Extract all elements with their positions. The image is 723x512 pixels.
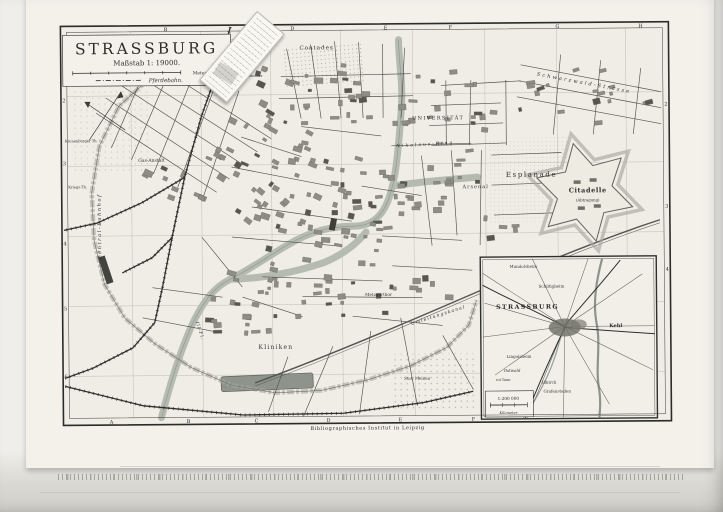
label-kriegsthor: Kriegs-Th. (68, 185, 87, 189)
inset-scale-unit: Kilometer (498, 411, 517, 415)
grid-top-h: H (638, 23, 643, 29)
grid-top-f: F (449, 25, 453, 31)
pferdebahn-label: Pferdebahn. (148, 78, 183, 84)
label-zentral-bahnhof: Zentral-Bahnhof (97, 193, 104, 260)
label-gas-anstalt: Gas-Anstalt (138, 158, 165, 164)
map-wrap: Contades Schwarzwald-Strasse UNIVERSITÄT… (30, 0, 714, 465)
inset-town-ostwald: Ostwald (504, 368, 521, 373)
publisher-credit: Bibliographisches Institut in Leipzig (310, 425, 425, 432)
map-title: STRASSBURG (75, 39, 218, 58)
grid-right-4: 4 (666, 267, 669, 273)
grid-left-5: 5 (64, 306, 67, 312)
inset-town-kehl: Kehl (609, 323, 622, 329)
inset-town-schiltigheim: Schiltigheim (539, 283, 565, 288)
label-stat-meinau: Stat. Meinau (404, 376, 431, 381)
inset-map: Mundolsheim Schiltigheim STRASSBURG Kehl… (480, 256, 657, 419)
inset-town-mundolsheim: Mundolsheim (509, 264, 537, 269)
label-esplanade: Esplanade (506, 171, 557, 179)
next-page-edge (40, 492, 680, 493)
inset-town-vdtann: v.d.Tann (495, 378, 511, 382)
inset-town-grafenstaden: Grafenstaden (544, 388, 572, 393)
grid-left-6: 6 (65, 374, 68, 380)
inset-town-illkirch: Illkirch (542, 380, 557, 385)
inset-town-lingolsheim: Lingolsheim (507, 354, 532, 359)
page-bottom-edge (120, 466, 660, 467)
meadow-area (393, 353, 475, 410)
grid-left-3: 3 (63, 161, 66, 167)
grid-left-4: 4 (63, 241, 66, 247)
grid-top-d: D (290, 26, 294, 32)
city-map-canvas: Contades Schwarzwald-Strasse UNIVERSITÄT… (30, 0, 714, 465)
grid-top-g: G (555, 24, 559, 30)
label-kronenburger-thor: Kronenburger Th. (65, 139, 98, 143)
grid-left-2: 2 (62, 98, 65, 104)
grid-right-3: 3 (665, 204, 668, 210)
inset-title: STRASSBURG (496, 304, 559, 311)
grid-bottom-b: B (187, 419, 191, 425)
label-arsenal: Arsenal (461, 184, 488, 190)
showthrough-text-row (58, 474, 683, 480)
label-kliniken: Kliniken (259, 344, 294, 351)
book-page-photo: Contades Schwarzwald-Strasse UNIVERSITÄT… (0, 0, 723, 512)
grid-bottom-f: F (472, 417, 476, 423)
label-contades: Contades (299, 45, 333, 51)
map-scale-text: Maßstab 1: 19000. (113, 59, 180, 68)
inset-scale-box: 1:200 000 Kilometer (485, 391, 533, 417)
inset-scale: 1:200 000 (498, 396, 520, 401)
grid-top-e: E (384, 25, 388, 31)
grid-bottom-d: D (326, 418, 330, 424)
grid-bottom-e: E (399, 417, 403, 423)
grid-right-2: 2 (664, 102, 667, 108)
grid-top-b: B (164, 27, 168, 33)
label-citadelle-note: (Abtragung) (576, 197, 600, 202)
label-citadelle: Citadelle (569, 186, 607, 194)
label-universitaet: UNIVERSITÄT (412, 114, 464, 121)
label-metzgerthor: Metzgerthor (365, 292, 392, 297)
grid-bottom-a: A (109, 420, 114, 426)
grid-bottom-c: C (255, 418, 259, 424)
